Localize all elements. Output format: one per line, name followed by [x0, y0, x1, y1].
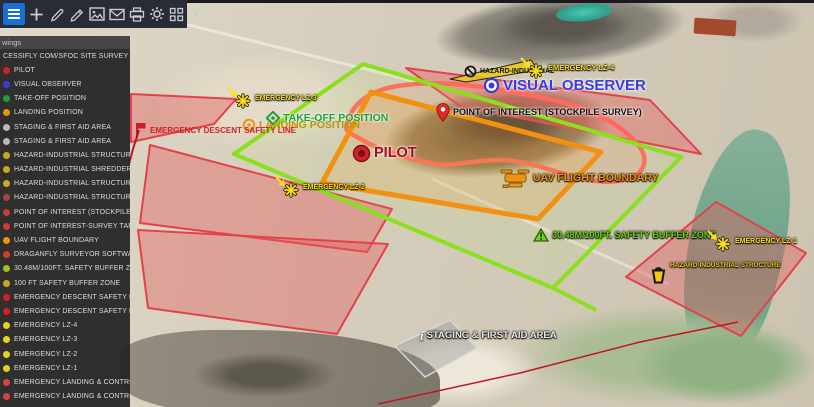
- layer-item[interactable]: EMERGENCY LZ-2: [0, 347, 130, 361]
- uav-flight-boundary-label: UAV FLIGHT BOUNDARY: [533, 173, 658, 184]
- layer-icon: [3, 265, 10, 272]
- layer-item[interactable]: STAGING & FIRST AID AREA: [0, 120, 130, 134]
- drawings-panel: wings CESSIFLY COM/SFOC SITE SURVEYPILOT…: [0, 36, 130, 407]
- layer-item[interactable]: 30.48M/100FT. SAFETY BUFFER ZONE: [0, 262, 130, 276]
- app-window: HAZARD-INDUSTRIALEMERGENCY LZ-4VISUAL OB…: [0, 0, 814, 407]
- layer-label: POINT OF INTEREST (STOCKPILE SURVEY): [14, 209, 130, 216]
- layer-item[interactable]: EMERGENCY LZ-4: [0, 319, 130, 333]
- layer-icon: [3, 109, 10, 116]
- apps-button[interactable]: [168, 6, 185, 23]
- mail-button[interactable]: [108, 6, 125, 23]
- emergency-lz-3-icon: [226, 86, 252, 110]
- layer-item[interactable]: LANDING POSITION: [0, 106, 130, 120]
- pilot-icon: [352, 144, 371, 163]
- layer-icon: [3, 152, 10, 159]
- layer-label: UAV FLIGHT BOUNDARY: [14, 237, 99, 244]
- layer-label: HAZARD-INDUSTRIAL SHREDDER: [14, 166, 130, 173]
- layer-icon: [3, 294, 10, 301]
- staging-first-aid-area-marker[interactable]: iSTAGING & FIRST AID AREA: [420, 329, 557, 342]
- layer-item[interactable]: STAGING & FIRST AID AREA: [0, 134, 130, 148]
- point-of-interest-icon: [436, 103, 450, 122]
- layer-item[interactable]: TAKE-OFF POSITION: [0, 92, 130, 106]
- layer-label: EMERGENCY LZ-2: [14, 351, 77, 358]
- layer-item[interactable]: EMERGENCY LZ-3: [0, 333, 130, 347]
- layer-item[interactable]: CESSIFLY COM/SFOC SITE SURVEY: [0, 49, 130, 63]
- layer-icon: [3, 81, 10, 88]
- visual-observer-icon: [483, 77, 500, 94]
- layer-label: LANDING POSITION: [14, 109, 83, 116]
- emergency-lz-1-icon: [706, 229, 732, 253]
- hazard-industrial-top-icon: [464, 65, 477, 78]
- layer-item[interactable]: HAZARD-INDUSTRIAL STRUCTURE: [0, 191, 130, 205]
- staging-first-aid-area-label: STAGING & FIRST AID AREA: [427, 331, 557, 341]
- layer-icon: [3, 67, 10, 74]
- emergency-lz-3-label: EMERGENCY LZ-3: [255, 95, 317, 102]
- layer-icon: [3, 138, 10, 145]
- staging-first-aid-area-icon: i: [420, 329, 424, 342]
- layer-item[interactable]: 100 FT SAFETY BUFFER ZONE: [0, 276, 130, 290]
- layer-item[interactable]: HAZARD-INDUSTRIAL STRUCTURE: [0, 148, 130, 162]
- layer-label: CESSIFLY COM/SFOC SITE SURVEY: [3, 53, 128, 60]
- layer-item[interactable]: POINT OF INTEREST-SURVEY TARGET: [0, 219, 130, 233]
- menu-button[interactable]: [3, 3, 25, 25]
- layer-label: HAZARD-INDUSTRIAL STRUCTURE: [14, 180, 130, 187]
- emergency-descent-safety-line-label: EMERGENCY DESCENT SAFETY LINE: [150, 127, 296, 135]
- safety-buffer-zone-label: 30.48M/100FT. SAFETY BUFFER ZONE: [552, 231, 716, 240]
- layer-label: EMERGENCY DESCENT SAFETY LINE: [14, 308, 130, 315]
- layer-icon: [3, 251, 10, 258]
- drawings-panel-header: wings: [0, 36, 130, 49]
- layer-icon: [3, 95, 10, 102]
- print-button[interactable]: [128, 6, 145, 23]
- visual-observer-marker[interactable]: VISUAL OBSERVER: [483, 77, 646, 94]
- layer-item[interactable]: DRAGANFLY SURVEYOR SOFTWARE UAV FLIGHT: [0, 248, 130, 262]
- hazard-industrial-structure-marker[interactable]: HAZARD-INDUSTRIAL STRUCTURE: [650, 263, 781, 284]
- emergency-descent-safety-line-marker[interactable]: EMERGENCY DESCENT SAFETY LINE: [135, 122, 296, 139]
- safety-buffer-zone-marker[interactable]: 30.48M/100FT. SAFETY BUFFER ZONE: [533, 228, 716, 242]
- emergency-lz-2-marker[interactable]: EMERGENCY LZ-2: [274, 175, 365, 199]
- layer-item[interactable]: HAZARD-INDUSTRIAL SHREDDER: [0, 163, 130, 177]
- emergency-lz-1-label: EMERGENCY LZ-1: [735, 238, 797, 245]
- emergency-lz-4-label: EMERGENCY LZ-4: [548, 64, 614, 72]
- measure-button[interactable]: [68, 6, 85, 23]
- visual-observer-label: VISUAL OBSERVER: [503, 78, 646, 93]
- layer-icon: [3, 223, 10, 230]
- add-button[interactable]: [28, 6, 45, 23]
- layer-item[interactable]: UAV FLIGHT BOUNDARY: [0, 233, 130, 247]
- layer-icon: [3, 209, 10, 216]
- collapse-button[interactable]: [188, 6, 205, 23]
- pilot-marker[interactable]: PILOT: [352, 144, 417, 163]
- pilot-label: PILOT: [374, 146, 417, 161]
- layer-icon: [3, 379, 10, 386]
- layer-label: POINT OF INTEREST-SURVEY TARGET: [14, 223, 130, 230]
- point-of-interest-marker[interactable]: POINT OF INTEREST (STOCKPILE SURVEY): [436, 103, 642, 122]
- layer-label: EMERGENCY LANDING & CONTROLLED DESCENT: [14, 379, 130, 386]
- image-button[interactable]: [88, 6, 105, 23]
- layer-icon: [3, 322, 10, 329]
- layer-icon: [3, 180, 10, 187]
- layer-list: CESSIFLY COM/SFOC SITE SURVEYPILOTVISUAL…: [0, 49, 130, 404]
- draw-button[interactable]: [48, 6, 65, 23]
- settings-button[interactable]: [148, 6, 165, 23]
- layer-item[interactable]: EMERGENCY LANDING & CONTROLLED DESCENT: [0, 390, 130, 404]
- layer-icon: [3, 351, 10, 358]
- layer-label: 30.48M/100FT. SAFETY BUFFER ZONE: [14, 265, 130, 272]
- layer-icon: [3, 393, 10, 400]
- layer-item[interactable]: EMERGENCY LANDING & CONTROLLED DESCENT: [0, 375, 130, 389]
- layer-item[interactable]: VISUAL OBSERVER: [0, 77, 130, 91]
- layer-icon: [3, 194, 10, 201]
- emergency-lz-3-marker[interactable]: EMERGENCY LZ-3: [226, 86, 317, 110]
- layer-label: EMERGENCY LANDING & CONTROLLED DESCENT: [14, 393, 130, 400]
- uav-flight-boundary-icon: [500, 165, 530, 191]
- layer-icon: [3, 280, 10, 287]
- safety-buffer-zone-icon: [533, 228, 549, 242]
- layer-item[interactable]: HAZARD-INDUSTRIAL STRUCTURE: [0, 177, 130, 191]
- layer-label: HAZARD-INDUSTRIAL STRUCTURE: [14, 152, 130, 159]
- layer-label: EMERGENCY LZ-3: [14, 336, 77, 343]
- hazard-industrial-structure-label: HAZARD-INDUSTRIAL STRUCTURE: [670, 263, 781, 270]
- layer-item[interactable]: POINT OF INTEREST (STOCKPILE SURVEY): [0, 205, 130, 219]
- layer-icon: [3, 166, 10, 173]
- emergency-lz-2-label: EMERGENCY LZ-2: [303, 184, 365, 191]
- uav-flight-boundary-marker[interactable]: UAV FLIGHT BOUNDARY: [500, 165, 658, 191]
- layer-label: TAKE-OFF POSITION: [14, 95, 86, 102]
- point-of-interest-label: POINT OF INTEREST (STOCKPILE SURVEY): [453, 108, 642, 117]
- layer-label: DRAGANFLY SURVEYOR SOFTWARE UAV FLIGHT: [14, 251, 130, 258]
- layer-label: PILOT: [14, 67, 35, 74]
- layer-item[interactable]: EMERGENCY DESCENT SAFETY LINE: [0, 290, 130, 304]
- layer-label: STAGING & FIRST AID AREA: [14, 124, 111, 131]
- layer-item[interactable]: PILOT: [0, 63, 130, 77]
- layer-icon: [3, 124, 10, 131]
- layer-label: HAZARD-INDUSTRIAL STRUCTURE: [14, 194, 130, 201]
- layer-label: EMERGENCY LZ-1: [14, 365, 77, 372]
- layer-icon: [3, 336, 10, 343]
- emergency-lz-2-icon: [274, 175, 300, 199]
- layer-icon: [3, 308, 10, 315]
- layer-icon: [3, 365, 10, 372]
- layer-label: EMERGENCY LZ-4: [14, 322, 77, 329]
- layer-label: 100 FT SAFETY BUFFER ZONE: [14, 280, 120, 287]
- layer-item[interactable]: EMERGENCY LZ-1: [0, 361, 130, 375]
- hazard-industrial-structure-icon: [650, 263, 667, 284]
- layer-label: EMERGENCY DESCENT SAFETY LINE: [14, 294, 130, 301]
- toolbar: [0, 0, 187, 28]
- emergency-descent-safety-line-icon: [135, 122, 147, 139]
- layer-icon: [3, 237, 10, 244]
- emergency-lz-1-marker[interactable]: EMERGENCY LZ-1: [706, 229, 797, 253]
- layer-label: VISUAL OBSERVER: [14, 81, 82, 88]
- layer-label: STAGING & FIRST AID AREA: [14, 138, 111, 145]
- layer-item[interactable]: EMERGENCY DESCENT SAFETY LINE: [0, 304, 130, 318]
